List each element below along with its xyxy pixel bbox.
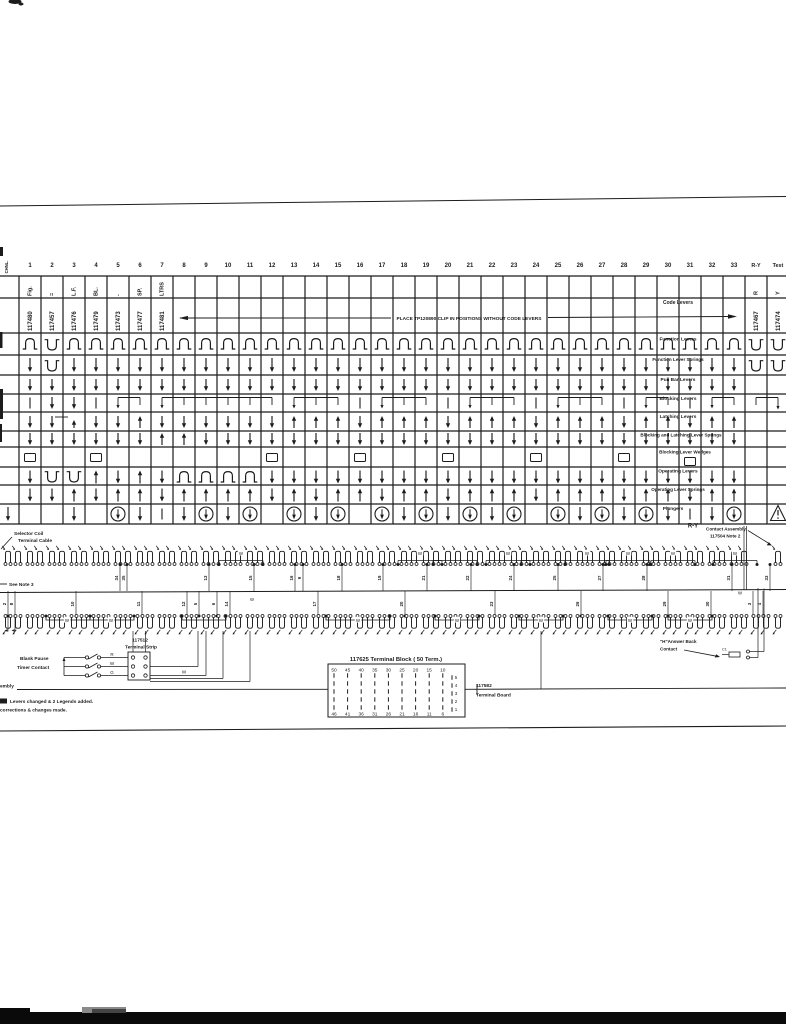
svg-text:Terminal Board: Terminal Board (476, 693, 511, 699)
svg-text:Latching Levers: Latching Levers (660, 414, 697, 420)
svg-text:Fig.: Fig. (28, 286, 34, 296)
svg-text:23: 23 (511, 263, 518, 269)
svg-text:Contact: Contact (660, 647, 678, 652)
svg-text:Function Lever Springs: Function Lever Springs (652, 357, 704, 362)
svg-text:117481: 117481 (160, 311, 166, 331)
svg-text:See Note 3: See Note 3 (9, 582, 34, 588)
svg-text:C1: C1 (722, 648, 727, 652)
svg-text:16: 16 (289, 575, 294, 580)
svg-text:24: 24 (533, 263, 540, 269)
svg-text:R-Y: R-Y (688, 524, 698, 530)
svg-text:10: 10 (225, 263, 232, 269)
svg-text:Terminal Cable: Terminal Cable (18, 538, 52, 544)
svg-text:Pull Bar Levers: Pull Bar Levers (661, 377, 696, 383)
svg-text:46: 46 (331, 712, 337, 718)
svg-text:26: 26 (575, 601, 580, 606)
svg-text:L.F.: L.F. (72, 286, 78, 296)
svg-text:31: 31 (372, 712, 378, 718)
svg-text:23: 23 (489, 601, 494, 606)
svg-text:41: 41 (345, 712, 351, 718)
svg-text:25: 25 (399, 668, 405, 674)
svg-text:19: 19 (377, 575, 382, 580)
svg-text:Timer Contact: Timer Contact (17, 665, 50, 671)
svg-text:16: 16 (357, 263, 364, 269)
svg-text:PLACE TP120890 CLIP IN POSITIO: PLACE TP120890 CLIP IN POSITIONS WITHOUT… (397, 316, 543, 322)
svg-text:21: 21 (399, 712, 405, 718)
svg-text:35: 35 (372, 668, 378, 674)
svg-text:17: 17 (312, 601, 317, 606)
svg-text:Blocking and Latching Lever Sp: Blocking and Latching Lever Springs (640, 433, 722, 438)
svg-text:30: 30 (386, 668, 392, 674)
svg-text:Blocking Lever Wedges: Blocking Lever Wedges (659, 450, 711, 455)
svg-text:27: 27 (597, 575, 602, 580)
svg-text:22: 22 (465, 575, 470, 580)
svg-text:32: 32 (709, 263, 716, 269)
svg-text:11: 11 (427, 712, 432, 718)
svg-text:16: 16 (413, 712, 419, 718)
svg-text:117457: 117457 (50, 311, 56, 331)
svg-text:117479: 117479 (94, 311, 100, 331)
svg-text:22: 22 (489, 263, 496, 269)
svg-text:26: 26 (386, 712, 392, 718)
svg-text:117473: 117473 (116, 311, 122, 331)
svg-text:29: 29 (643, 263, 650, 269)
svg-text:SP.: SP. (138, 287, 144, 296)
svg-text:LTRS: LTRS (160, 282, 166, 296)
svg-text:embly: embly (0, 684, 14, 690)
svg-text:117477: 117477 (138, 311, 144, 331)
svg-text:Code Levers: Code Levers (663, 300, 693, 306)
svg-text:30: 30 (705, 601, 710, 606)
svg-text:25: 25 (552, 575, 557, 580)
svg-text:15: 15 (427, 668, 433, 674)
svg-text:40: 40 (359, 668, 365, 674)
svg-text:Selector Coil: Selector Coil (14, 531, 43, 537)
svg-text:34: 34 (114, 575, 119, 580)
svg-text:21: 21 (421, 575, 426, 580)
svg-text:Function Levers: Function Levers (659, 337, 696, 343)
svg-text:20: 20 (399, 601, 404, 606)
svg-text:-: - (116, 294, 122, 296)
svg-text:Blocking Levers: Blocking Levers (659, 396, 696, 402)
svg-text:50: 50 (331, 668, 337, 674)
svg-text:117476: 117476 (72, 311, 78, 331)
svg-text:13: 13 (203, 575, 208, 580)
svg-text:G: G (110, 670, 114, 675)
svg-text:45: 45 (345, 668, 351, 674)
svg-text:Operating Levers: Operating Levers (658, 469, 698, 475)
svg-text:=: = (50, 293, 56, 296)
svg-text:R: R (754, 291, 760, 295)
svg-text:Levers changed & 2 Legends add: Levers changed & 2 Legends added. (10, 699, 93, 705)
svg-text:11: 11 (136, 601, 141, 606)
svg-text:20: 20 (413, 668, 419, 674)
svg-text:15: 15 (248, 575, 253, 580)
svg-text:CHNL.: CHNL. (4, 261, 9, 274)
svg-text:117504 Note 2: 117504 Note 2 (710, 534, 741, 539)
svg-text:29: 29 (662, 601, 667, 606)
svg-text:13: 13 (291, 263, 298, 269)
svg-text:Terminal Strip: Terminal Strip (125, 645, 157, 651)
svg-text:18: 18 (401, 263, 408, 269)
svg-text:10: 10 (440, 668, 446, 674)
svg-text:31: 31 (687, 263, 694, 269)
svg-text:117474: 117474 (776, 311, 782, 331)
svg-text:14: 14 (224, 601, 229, 606)
svg-text:35: 35 (121, 575, 126, 580)
svg-text:33: 33 (764, 575, 769, 580)
svg-text:BL.: BL. (94, 287, 100, 296)
svg-text:18: 18 (336, 575, 341, 580)
svg-text:26: 26 (577, 263, 584, 269)
svg-text:Plungers: Plungers (663, 506, 684, 512)
svg-text:36: 36 (359, 712, 365, 718)
svg-text:28: 28 (641, 575, 646, 580)
svg-text:33: 33 (731, 263, 738, 269)
svg-text:117625 Terminal Block ( 50 Ter: 117625 Terminal Block ( 50 Term.) (350, 657, 442, 663)
svg-text:corrections & changes made.: corrections & changes made. (0, 708, 67, 714)
svg-text:117582: 117582 (476, 683, 492, 689)
svg-text:11: 11 (247, 263, 254, 269)
svg-text:30: 30 (665, 263, 672, 269)
svg-text:12: 12 (269, 263, 276, 269)
svg-text:Test: Test (773, 263, 784, 269)
svg-text:28: 28 (621, 263, 628, 269)
svg-text:R-Y: R-Y (751, 263, 761, 269)
svg-text:21: 21 (467, 263, 474, 269)
svg-text:117480: 117480 (28, 311, 34, 331)
svg-text:15: 15 (335, 263, 342, 269)
svg-text:10: 10 (70, 601, 75, 606)
svg-text:"H"Answer Back: "H"Answer Back (660, 639, 697, 644)
svg-text:27: 27 (599, 263, 606, 269)
svg-text:117467: 117467 (754, 311, 760, 331)
svg-text:20: 20 (445, 263, 452, 269)
svg-text:19: 19 (423, 263, 430, 269)
svg-text:Operating Lever Springs: Operating Lever Springs (651, 487, 705, 492)
svg-text:25: 25 (555, 263, 562, 269)
svg-text:24: 24 (508, 575, 513, 580)
svg-text:12: 12 (181, 601, 186, 606)
svg-text:14: 14 (313, 263, 320, 269)
svg-text:17: 17 (379, 263, 386, 269)
svg-text:W: W (250, 597, 254, 602)
svg-text:6: 6 (441, 712, 444, 718)
svg-text:Y: Y (776, 291, 782, 295)
svg-text:Contact Assembly.: Contact Assembly. (706, 527, 747, 532)
svg-text:Blank Pause: Blank Pause (20, 656, 49, 662)
svg-text:31: 31 (726, 575, 731, 580)
